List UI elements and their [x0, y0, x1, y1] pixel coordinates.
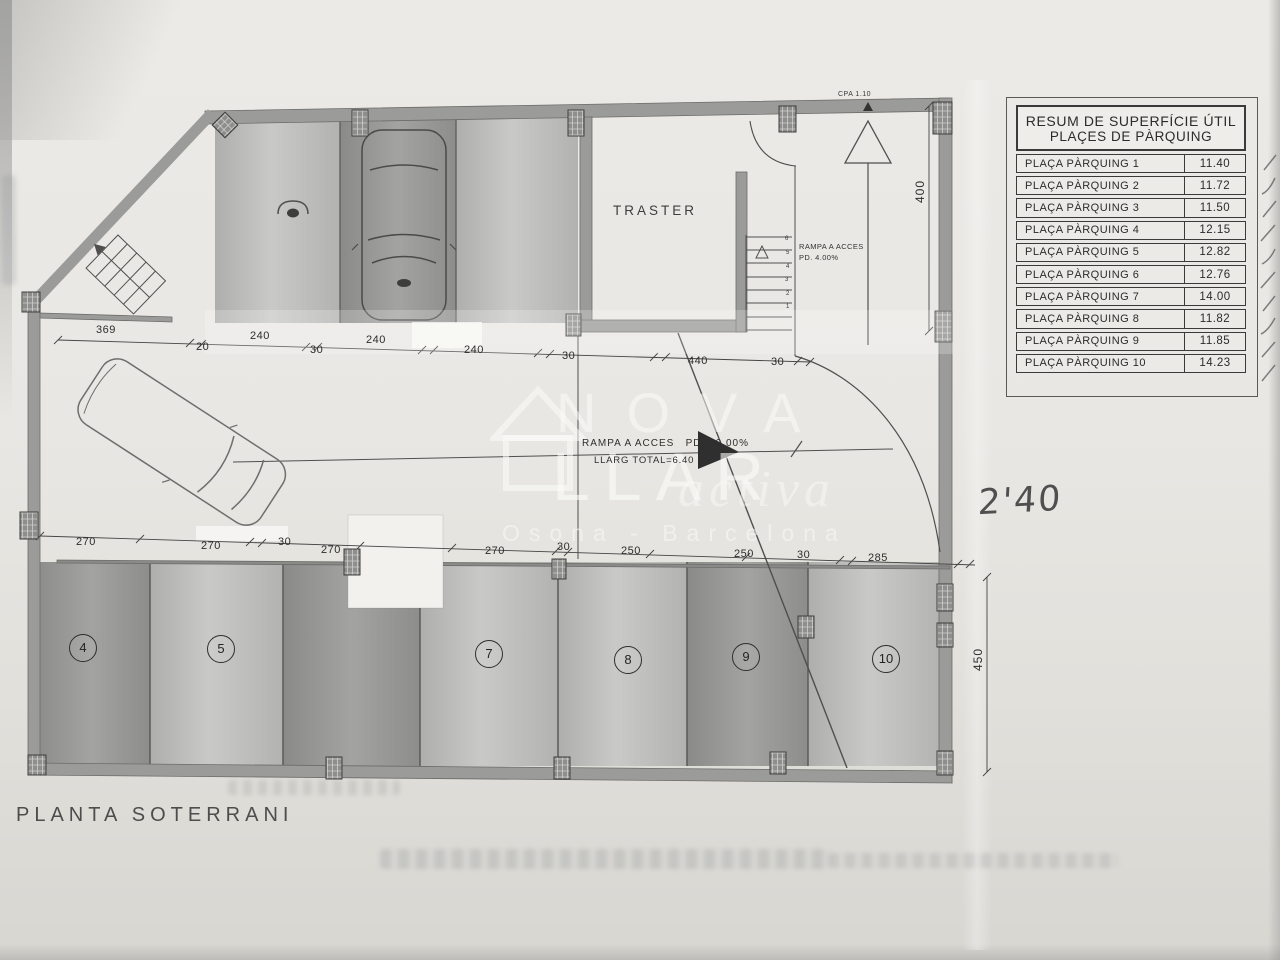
row-value: 14.23	[1184, 355, 1245, 372]
handwritten-note: 2'40	[977, 479, 1063, 524]
table-row: PLAÇA PÀRQUING 111.40	[1016, 154, 1246, 173]
table-row: PLAÇA PÀRQUING 412.15	[1016, 221, 1246, 240]
table-row: PLAÇA PÀRQUING 911.85	[1016, 332, 1246, 351]
row-label: PLAÇA PÀRQUING 2	[1017, 180, 1184, 192]
dim-label: 285	[868, 552, 888, 564]
row-value: 14.00	[1184, 288, 1245, 305]
row-label: PLAÇA PÀRQUING 5	[1017, 246, 1184, 258]
dim-label: 30	[310, 344, 323, 356]
dim-label: 240	[366, 334, 386, 346]
stair-step-number: 2	[786, 291, 789, 297]
stair-step-number: 3	[785, 277, 788, 283]
stair-step-number: 5	[786, 250, 789, 256]
stair-step-number: 1	[786, 304, 789, 310]
handwritten-marks	[1261, 155, 1276, 381]
parking-space-number: 10	[872, 645, 900, 673]
dim-label: 440	[688, 355, 708, 367]
scanned-floorplan-sheet: NOVA LLAR activa Osona - Barcelona TRAST…	[0, 0, 1280, 960]
table-title-line1: RESUM DE SUPERFÍCIE ÚTIL	[1018, 113, 1244, 129]
table-row: PLAÇA PÀRQUING 714.00	[1016, 287, 1246, 306]
row-label: PLAÇA PÀRQUING 8	[1017, 313, 1184, 325]
dim-label: 240	[464, 344, 484, 356]
ramp-access-label-line2: PD. 4.00%	[799, 253, 838, 262]
dim-label: 30	[797, 549, 810, 561]
dim-label-vertical: 400	[913, 180, 927, 203]
row-value: 11.40	[1184, 155, 1245, 172]
row-value: 11.50	[1184, 199, 1245, 216]
dim-label: 270	[201, 540, 221, 552]
sketched-car-drawing	[67, 346, 296, 538]
table-title-line2: PLAÇES DE PÀRQUING	[1018, 129, 1244, 144]
parking-space-number: 4	[69, 634, 97, 662]
row-value: 11.72	[1184, 177, 1245, 194]
table-row: PLAÇA PÀRQUING 811.82	[1016, 309, 1246, 328]
parking-space-number: 7	[475, 640, 503, 668]
row-label: PLAÇA PÀRQUING 3	[1017, 202, 1184, 214]
watermark-city: Osona - Barcelona	[502, 520, 847, 547]
parking-surface-table: RESUM DE SUPERFÍCIE ÚTIL PLAÇES DE PÀRQU…	[1016, 105, 1246, 387]
stair-step-number: 6	[785, 236, 788, 242]
row-label: PLAÇA PÀRQUING 9	[1017, 335, 1184, 347]
cpa-level-label: CPA 1.10	[838, 91, 871, 98]
dim-label: 20	[196, 341, 209, 353]
table-row: PLAÇA PÀRQUING 1014.23	[1016, 354, 1246, 373]
watermark-activa: activa	[678, 460, 835, 519]
row-value: 11.85	[1184, 333, 1245, 350]
row-label: PLAÇA PÀRQUING 7	[1017, 291, 1184, 303]
parking-space-number: 8	[614, 646, 642, 674]
row-label: PLAÇA PÀRQUING 4	[1017, 224, 1184, 236]
ramp-access-label-line1: RAMPA A ACCES	[799, 242, 864, 251]
dim-label: 30	[557, 541, 570, 553]
row-label: PLAÇA PÀRQUING 6	[1017, 269, 1184, 281]
dim-label: 270	[321, 544, 341, 556]
watermark-nova: NOVA	[556, 380, 831, 445]
traster-room-label: TRASTER	[595, 203, 715, 218]
table-row: PLAÇA PÀRQUING 612.76	[1016, 265, 1246, 284]
dim-label: 30	[562, 350, 575, 362]
row-value: 12.82	[1184, 244, 1245, 261]
ramp-main-label-line2: LLARG TOTAL=6.40 m.	[594, 455, 710, 466]
dim-label: 270	[485, 545, 505, 557]
dim-label: 250	[734, 548, 754, 560]
dim-label: 250	[621, 545, 641, 557]
table-row: PLAÇA PÀRQUING 211.72	[1016, 176, 1246, 195]
row-label: PLAÇA PÀRQUING 10	[1017, 357, 1184, 369]
row-value: 12.76	[1184, 266, 1245, 283]
dim-label: 240	[250, 330, 270, 342]
row-value: 11.82	[1184, 310, 1245, 327]
table-row: PLAÇA PÀRQUING 512.82	[1016, 243, 1246, 262]
plan-title: PLANTA SOTERRANI	[16, 804, 293, 827]
parking-space-number: 5	[207, 635, 235, 663]
dim-label-vertical: 450	[971, 648, 985, 671]
table-row: PLAÇA PÀRQUING 311.50	[1016, 198, 1246, 217]
diagonal-wall	[33, 113, 212, 303]
table-header: RESUM DE SUPERFÍCIE ÚTIL PLAÇES DE PÀRQU…	[1016, 105, 1246, 151]
row-label: PLAÇA PÀRQUING 1	[1017, 158, 1184, 170]
dim-label: 270	[76, 536, 96, 548]
dim-label: 369	[96, 324, 116, 336]
row-value: 12.15	[1184, 222, 1245, 239]
top-parking-bays	[215, 117, 578, 323]
stair-step-number: 4	[786, 264, 789, 270]
dim-label: 30	[771, 356, 784, 368]
dim-label: 30	[278, 536, 291, 548]
parking-space-number: 9	[732, 643, 760, 671]
ramp-main-label-line1: RAMPA A ACCES PD. 20.00%	[582, 438, 749, 449]
